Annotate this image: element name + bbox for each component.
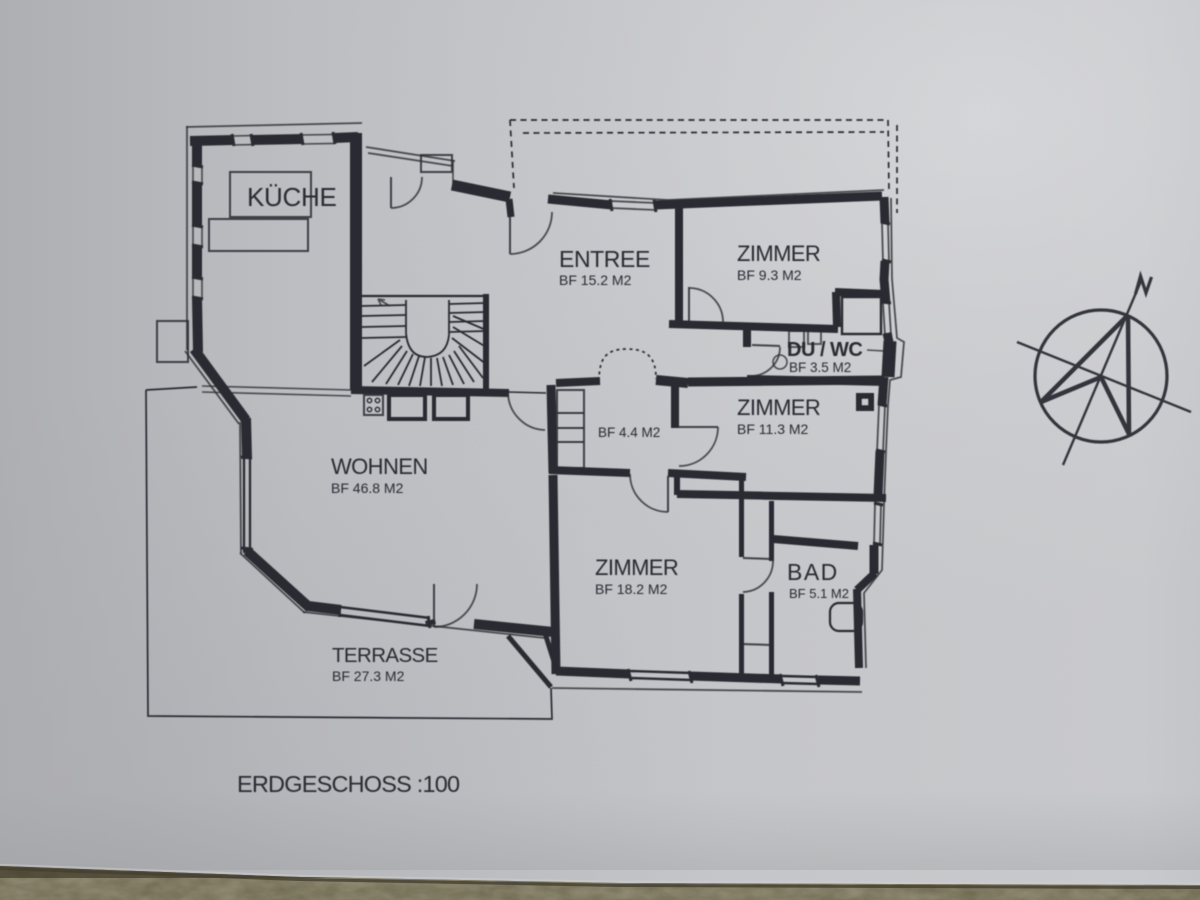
svg-text:WOHNEN: WOHNEN <box>331 454 428 479</box>
svg-text:ZIMMER: ZIMMER <box>737 395 820 420</box>
svg-text:ERDGESCHOSS :100: ERDGESCHOSS :100 <box>237 771 460 797</box>
svg-text:ZIMMER: ZIMMER <box>737 241 820 266</box>
svg-text:BF 4.4 M2: BF 4.4 M2 <box>598 425 660 440</box>
svg-text:ZIMMER: ZIMMER <box>595 555 678 580</box>
svg-text:BAD: BAD <box>787 559 839 585</box>
svg-text:BF 46.8 M2: BF 46.8 M2 <box>331 480 404 496</box>
svg-text:BF 9.3 M2: BF 9.3 M2 <box>737 267 802 283</box>
svg-text:BF 5.1 M2: BF 5.1 M2 <box>789 586 849 601</box>
svg-text:BF 18.2 M2: BF 18.2 M2 <box>595 581 668 597</box>
svg-text:BF 11.3 M2: BF 11.3 M2 <box>737 421 809 437</box>
svg-text:KÜCHE: KÜCHE <box>247 182 337 212</box>
svg-text:ENTREE: ENTREE <box>559 246 650 272</box>
svg-text:DU / WC: DU / WC <box>787 339 862 361</box>
svg-text:BF 15.2 M2: BF 15.2 M2 <box>559 272 632 288</box>
svg-text:BF 27.3 M2: BF 27.3 M2 <box>332 668 405 684</box>
svg-text:TERRASSE: TERRASSE <box>332 644 438 667</box>
svg-text:BF 3.5 M2: BF 3.5 M2 <box>789 360 851 375</box>
